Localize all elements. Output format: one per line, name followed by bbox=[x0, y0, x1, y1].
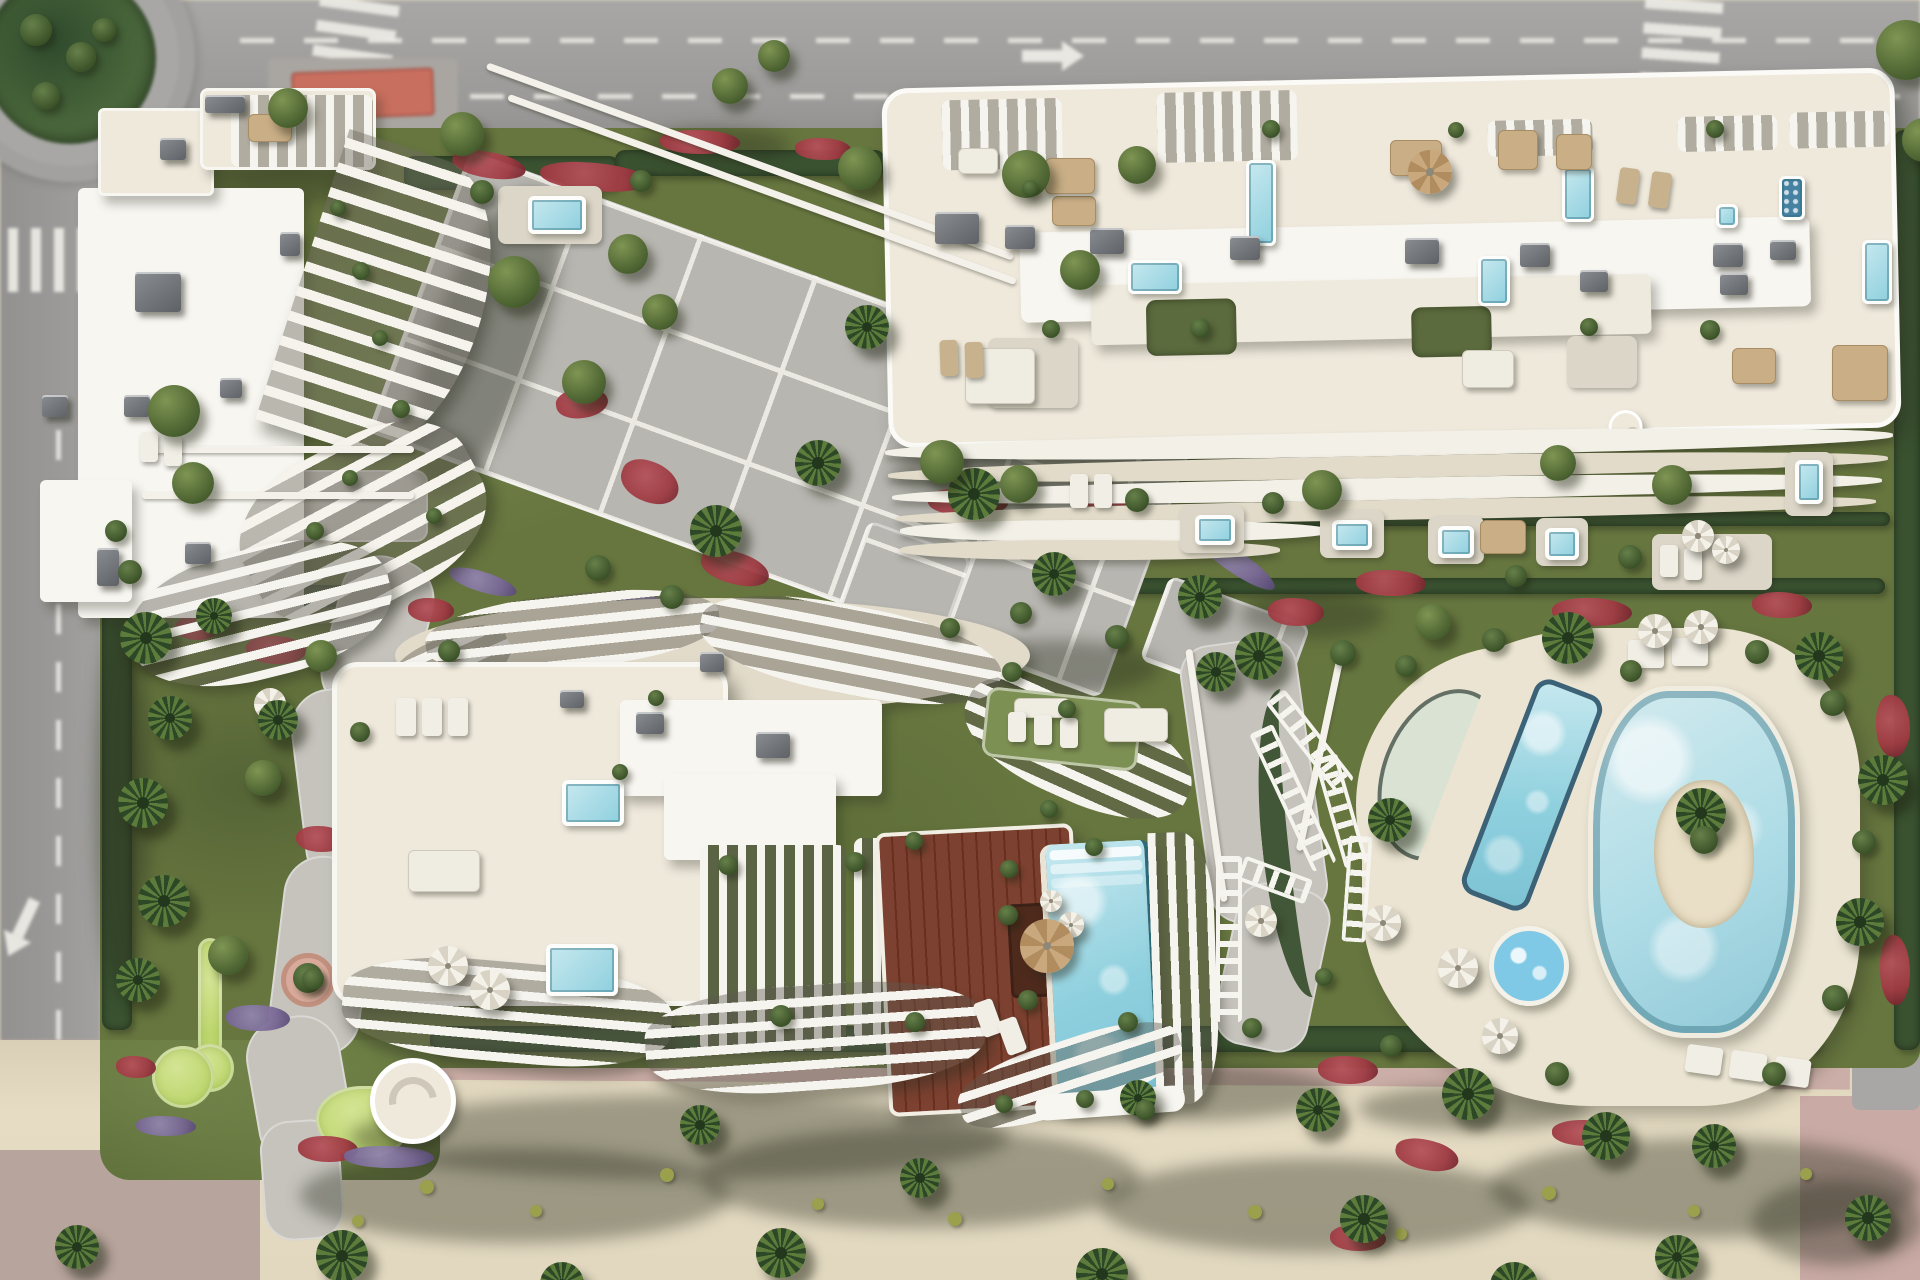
palm-tree bbox=[316, 1230, 368, 1280]
bush bbox=[1822, 985, 1848, 1011]
tree bbox=[305, 640, 337, 672]
palm-tree bbox=[148, 696, 192, 740]
tree bbox=[1415, 604, 1451, 640]
bush bbox=[1618, 545, 1642, 569]
bush bbox=[306, 522, 324, 540]
bush bbox=[1852, 830, 1876, 854]
bush bbox=[1010, 602, 1032, 624]
bush bbox=[1580, 318, 1598, 336]
palm-tree bbox=[55, 1225, 99, 1269]
bush bbox=[612, 764, 628, 780]
bush bbox=[118, 560, 142, 584]
bush bbox=[1545, 1062, 1569, 1086]
palm-tree bbox=[756, 1228, 806, 1278]
tree bbox=[208, 935, 248, 975]
bush bbox=[1018, 990, 1038, 1010]
bush bbox=[372, 330, 388, 346]
bush bbox=[20, 14, 52, 46]
palm-tree bbox=[138, 875, 190, 927]
bush bbox=[998, 905, 1018, 925]
tree bbox=[1876, 20, 1920, 80]
palm-tree bbox=[1582, 1112, 1630, 1160]
palm-tree bbox=[900, 1158, 940, 1198]
bush bbox=[1620, 660, 1642, 682]
bush bbox=[630, 170, 652, 192]
tree bbox=[1000, 465, 1038, 503]
bush bbox=[1315, 968, 1333, 986]
bush bbox=[845, 852, 865, 872]
tree bbox=[562, 360, 606, 404]
bush bbox=[1002, 662, 1022, 682]
palm-tree bbox=[118, 778, 168, 828]
palm-tree bbox=[690, 505, 742, 557]
bush bbox=[1085, 838, 1103, 856]
bush bbox=[1482, 628, 1506, 652]
palm-tree bbox=[680, 1105, 720, 1145]
bush bbox=[1058, 700, 1076, 718]
bush bbox=[718, 855, 738, 875]
bush bbox=[1125, 488, 1149, 512]
palm-tree bbox=[1490, 1262, 1538, 1280]
tree bbox=[712, 68, 748, 104]
palm-tree bbox=[116, 958, 160, 1002]
bush bbox=[1330, 640, 1356, 666]
palm-tree bbox=[1340, 1195, 1388, 1243]
aerial-render-residential-complex bbox=[0, 0, 1920, 1280]
palm-tree bbox=[258, 700, 298, 740]
bush bbox=[995, 1095, 1013, 1113]
tree bbox=[488, 256, 540, 308]
bush bbox=[1190, 318, 1210, 338]
bush bbox=[302, 968, 324, 990]
palm-tree bbox=[196, 598, 232, 634]
palm-tree bbox=[1836, 898, 1884, 946]
tree bbox=[920, 440, 964, 484]
palm-tree bbox=[1368, 798, 1412, 842]
palm-tree bbox=[795, 440, 841, 486]
bush bbox=[426, 508, 442, 524]
bush bbox=[1262, 120, 1280, 138]
bush bbox=[66, 42, 96, 72]
tree bbox=[642, 294, 678, 330]
bush bbox=[330, 200, 346, 216]
bush bbox=[660, 585, 684, 609]
tree bbox=[1902, 118, 1920, 162]
bush bbox=[1076, 1090, 1094, 1108]
tree bbox=[148, 385, 200, 437]
palm-tree bbox=[1296, 1088, 1340, 1132]
palm-tree bbox=[1442, 1068, 1494, 1120]
tree bbox=[1302, 470, 1342, 510]
palm-tree bbox=[540, 1262, 584, 1280]
palm-tree bbox=[1076, 1248, 1128, 1280]
bush bbox=[905, 1012, 925, 1032]
bush bbox=[350, 722, 370, 742]
vegetation-layer bbox=[0, 0, 1920, 1280]
bush bbox=[1820, 690, 1846, 716]
tree bbox=[172, 462, 214, 504]
bush bbox=[438, 640, 460, 662]
bush bbox=[1022, 180, 1038, 196]
bush bbox=[1706, 120, 1724, 138]
palm-tree bbox=[1692, 1124, 1736, 1168]
bush bbox=[1262, 492, 1284, 514]
bush bbox=[1105, 625, 1129, 649]
bush bbox=[392, 400, 410, 418]
palm-tree bbox=[1795, 632, 1843, 680]
bush bbox=[648, 690, 664, 706]
palm-tree bbox=[1542, 612, 1594, 664]
tree bbox=[268, 88, 308, 128]
tree bbox=[1118, 146, 1156, 184]
palm-tree bbox=[1178, 575, 1222, 619]
bush bbox=[940, 618, 960, 638]
bush bbox=[905, 832, 923, 850]
palm-tree bbox=[1655, 1235, 1699, 1279]
tree bbox=[1652, 465, 1692, 505]
bush bbox=[1762, 1062, 1786, 1086]
bush bbox=[92, 18, 116, 42]
palm-tree bbox=[1845, 1195, 1891, 1241]
bush bbox=[1380, 1035, 1402, 1057]
bush bbox=[342, 470, 358, 486]
tree bbox=[440, 112, 484, 156]
tree bbox=[1540, 445, 1576, 481]
bush bbox=[1000, 860, 1018, 878]
bush bbox=[1690, 826, 1718, 854]
palm-tree bbox=[120, 612, 172, 664]
bush bbox=[470, 180, 494, 204]
palm-tree bbox=[845, 305, 889, 349]
bush bbox=[1505, 565, 1527, 587]
bush bbox=[1395, 655, 1417, 677]
bush bbox=[1118, 1012, 1138, 1032]
bush bbox=[585, 555, 611, 581]
tree bbox=[608, 234, 648, 274]
palm-tree bbox=[1196, 652, 1236, 692]
tree bbox=[838, 146, 882, 190]
palm-tree bbox=[1235, 632, 1283, 680]
palm-tree bbox=[1032, 552, 1076, 596]
tree bbox=[245, 760, 281, 796]
bush bbox=[1135, 1100, 1155, 1120]
bush bbox=[1448, 122, 1464, 138]
tree bbox=[758, 40, 790, 72]
tree bbox=[1060, 250, 1100, 290]
bush bbox=[1242, 1018, 1262, 1038]
bush bbox=[1700, 320, 1720, 340]
bush bbox=[352, 262, 370, 280]
bush bbox=[770, 1005, 792, 1027]
bush bbox=[32, 82, 60, 110]
bush bbox=[1040, 800, 1058, 818]
bush bbox=[105, 520, 127, 542]
bush bbox=[1042, 320, 1060, 338]
palm-tree bbox=[1858, 755, 1908, 805]
bush bbox=[1745, 640, 1769, 664]
